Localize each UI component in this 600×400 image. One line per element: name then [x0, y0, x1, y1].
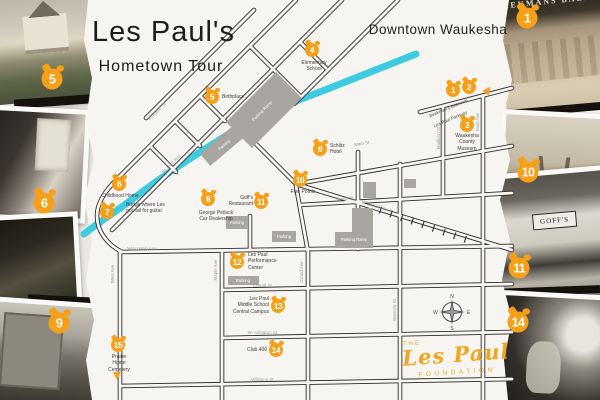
photo-marker-14: 14 [508, 312, 529, 333]
stop-label-middle-school: Les Paul Middle School Central Campus [233, 296, 269, 315]
map-marker-8: 8 [201, 192, 215, 206]
compass-e: E [467, 310, 471, 316]
map-marker-3: 3 [460, 118, 474, 132]
street-label: Carroll St. [253, 283, 273, 288]
stop-label-schlitz: Schlitz Hotel [330, 143, 345, 156]
map-marker-6: 6 [112, 177, 126, 191]
street-label: Maple Ave [213, 259, 218, 280]
offmap-arrow-south [113, 372, 121, 380]
page-title: Les Paul's [86, 16, 241, 49]
stop-label-museum: Waukesha County Museum [455, 133, 478, 152]
stop-label-cemetery: Prairie Home Cemetery [108, 354, 130, 373]
street-label: Wisconsin Ave [127, 246, 157, 251]
photo-marker-11: 11 [509, 258, 530, 279]
street-label: Williams St. [251, 377, 275, 382]
stop-label-performance-center: Les Paul Performance Center [248, 252, 277, 271]
stop-label-dealership: George Petluck Car Dealership [199, 210, 233, 223]
street-label: East Ave [475, 113, 480, 131]
gray-building [404, 179, 416, 188]
compass-rose: N E S W [433, 294, 471, 332]
stop-label-bridge: Bridge where Les got rail for guitar [126, 202, 165, 215]
map-marker-11: 11 [254, 195, 268, 209]
photo-marker-9: 9 [49, 313, 70, 334]
map-marker-2: 2 [462, 80, 476, 94]
map-marker-4: 4 [305, 43, 319, 57]
map-marker-13: 13 [271, 299, 285, 313]
gray-building [363, 182, 376, 198]
stop-label-birthplace: Birthplace [222, 94, 244, 100]
page-subtitle: Hometown Tour [86, 58, 236, 76]
photo-marker-5: 5 [42, 69, 63, 90]
map-marker-10: 10 [293, 173, 307, 187]
photo-marker-6: 6 [34, 193, 55, 214]
map-marker-14: 14 [269, 343, 283, 357]
map-marker-15: 15 [111, 338, 125, 352]
stop-label-school: Elementary School [301, 60, 326, 73]
building-label: Parking [236, 278, 251, 283]
stop-label-five-points: Five Points [291, 189, 316, 195]
map-marker-5: 5 [205, 90, 219, 104]
compass-w: W [433, 310, 438, 316]
map-marker-1: 1 [446, 83, 460, 97]
photo-marker-10: 10 [518, 162, 539, 183]
compass-n: N [450, 294, 454, 300]
street-label: Barstow St [392, 298, 397, 321]
map-marker-9: 9 [313, 142, 327, 156]
street-label: South St [336, 196, 354, 202]
street-label: West Ave [110, 264, 115, 283]
street-label: W. Arlington St. [248, 330, 279, 335]
building-label: Parking [277, 234, 292, 239]
street-label: Main St [354, 140, 371, 147]
stop-label-goffs: Goff's Restaurant [229, 195, 253, 208]
stop-label-childhood-home: Childhood Home [101, 193, 138, 199]
photo-marker-1: 1 [517, 8, 538, 29]
street-label: Wisconsin Ave [337, 240, 367, 245]
downtown-label: Downtown Waukesha [367, 22, 509, 37]
map-marker-7: 7 [100, 205, 114, 219]
map-marker-12: 12 [230, 255, 244, 269]
street-label: Grand Ave [299, 261, 304, 283]
stop-label-club-400: Club 400 [247, 347, 267, 353]
les-paul-hometown-tour-map: BEEKMANS BALLROOM GOFF'S [0, 0, 600, 400]
